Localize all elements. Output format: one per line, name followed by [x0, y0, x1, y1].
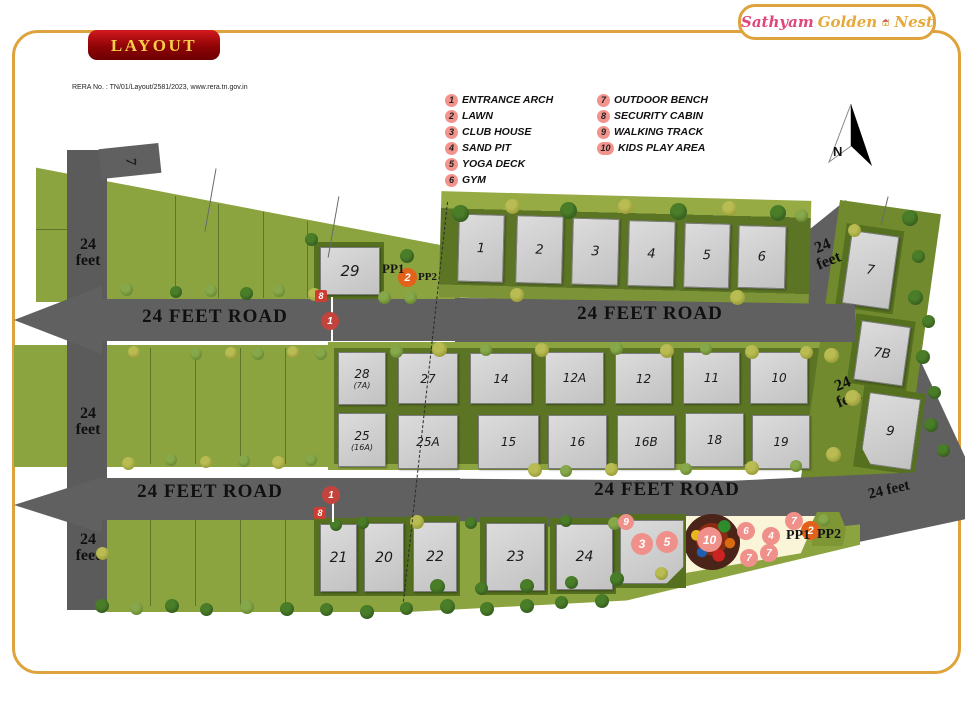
plot-16: 16 — [548, 415, 607, 469]
tree-icon — [440, 599, 455, 614]
road-label-lower-left: 24 FEET ROAD — [115, 481, 305, 503]
tree-icon — [240, 600, 254, 614]
tree-icon — [120, 283, 133, 296]
tree-icon — [252, 348, 264, 360]
tree-icon — [924, 418, 938, 432]
tree-icon — [128, 346, 140, 358]
marker-walking-track: 9 — [618, 514, 634, 530]
plot-number: 29 — [340, 262, 359, 280]
tree-icon — [273, 285, 285, 297]
tree-icon — [225, 347, 237, 359]
plot-23: 23 — [486, 523, 545, 591]
plot-28: 28(7A) — [338, 352, 386, 405]
tree-icon — [535, 343, 549, 357]
legend-num-2: 2 — [445, 110, 458, 123]
tree-icon — [745, 461, 759, 475]
tree-icon — [238, 455, 250, 467]
legend-num-6: 6 — [445, 174, 458, 187]
green-left-strip — [14, 345, 67, 467]
legend-label: GYM — [462, 174, 486, 186]
tree-icon — [510, 288, 524, 302]
tree-icon — [800, 346, 813, 359]
legend-label: CLUB HOUSE — [462, 126, 531, 138]
legend-left-column: 1ENTRANCE ARCH 2LAWN 3CLUB HOUSE 4SAND P… — [445, 92, 553, 188]
plot-14: 14 — [470, 353, 532, 404]
tree-icon — [670, 203, 687, 220]
legend-num-3: 3 — [445, 126, 458, 139]
tree-icon — [937, 444, 950, 457]
road-label-lower-right: 24 FEET ROAD — [572, 479, 762, 501]
plot-16b: 16B — [617, 415, 675, 469]
marker-security-cabin: 8 — [314, 507, 326, 519]
tree-icon — [790, 460, 802, 472]
plot-25: 25(16A) — [338, 413, 386, 467]
plot-number: 7B — [872, 345, 891, 362]
plot-7b: 7B — [853, 320, 911, 386]
plot-division-line — [240, 520, 241, 606]
brand-word-golden: Golden — [818, 13, 877, 31]
plot-11: 11 — [683, 352, 740, 404]
tree-icon — [745, 345, 759, 359]
tree-icon — [280, 602, 294, 616]
tree-icon — [700, 343, 712, 355]
tree-icon — [555, 596, 568, 609]
plot-number: 4 — [647, 246, 656, 261]
tree-icon — [818, 514, 830, 526]
legend-item: 4SAND PIT — [445, 140, 553, 156]
plot-number: 16B — [634, 435, 658, 449]
tree-icon — [165, 454, 177, 466]
house-icon — [881, 14, 890, 31]
plot-number: 28 — [354, 367, 369, 381]
tree-icon — [928, 386, 941, 399]
plot-6: 6 — [737, 225, 787, 289]
tree-icon — [200, 456, 212, 468]
plot-division-line — [263, 212, 264, 298]
feet-label-left-2: 24 feet — [68, 406, 108, 439]
plot-21: 21 — [320, 524, 357, 592]
legend-num-5: 5 — [445, 158, 458, 171]
plot-number: 14 — [493, 372, 508, 386]
layout-plan-page: LAYOUT RERA No. : TN/01/Layout/2581/2023… — [0, 0, 972, 704]
legend-label: YOGA DECK — [462, 158, 525, 170]
legend-label: OUTDOOR BENCH — [614, 94, 708, 106]
plot-1: 1 — [457, 214, 505, 283]
tree-icon — [902, 210, 918, 226]
plot-18: 18 — [685, 413, 744, 467]
plot-division-line — [218, 204, 219, 298]
rera-number-text: RERA No. : TN/01/Layout/2581/2023, www.r… — [72, 84, 248, 91]
plot-number: 25 — [354, 429, 369, 443]
plot-number: 22 — [426, 549, 444, 565]
marker-entrance-arch: 1 — [321, 312, 339, 330]
tree-icon — [130, 602, 143, 615]
plot-19: 19 — [752, 415, 810, 469]
legend-num-10: 10 — [597, 142, 614, 155]
tree-icon — [378, 291, 391, 304]
tree-icon — [845, 390, 861, 406]
tree-icon — [770, 205, 786, 221]
plot-division-line — [175, 196, 176, 298]
plot-division-line — [285, 520, 286, 606]
plot-number: 18 — [707, 433, 722, 447]
plot-division-line — [36, 229, 67, 230]
legend-item: 5YOGA DECK — [445, 156, 553, 172]
brand-logo: Sathyam Golden Nest — [738, 4, 936, 40]
tree-icon — [475, 582, 488, 595]
plot-division-line — [150, 520, 151, 606]
plot-number: 21 — [330, 550, 348, 566]
plot-division-line — [285, 348, 286, 464]
tree-icon — [826, 447, 841, 462]
tree-icon — [122, 457, 135, 470]
plot-number: 6 — [757, 249, 766, 264]
plot-12a: 12A — [545, 352, 604, 404]
tree-icon — [480, 344, 492, 356]
tree-icon — [618, 199, 633, 214]
tree-icon — [660, 344, 674, 358]
legend-label: LAWN — [462, 110, 493, 122]
tree-icon — [520, 599, 534, 613]
plot-number: 12 — [636, 372, 651, 386]
north-label: N — [833, 144, 842, 159]
legend-num-8: 8 — [597, 110, 610, 123]
plot-division-line — [150, 348, 151, 464]
legend-item: 2LAWN — [445, 108, 553, 124]
plot-9: 9 — [860, 392, 922, 471]
layout-title-badge: LAYOUT — [88, 30, 220, 60]
tree-icon — [560, 515, 572, 527]
tree-icon — [908, 290, 923, 305]
legend-label: KIDS PLAY AREA — [618, 142, 705, 154]
plot-7: 7 — [842, 230, 900, 310]
legend-item: 8SECURITY CABIN — [597, 108, 708, 124]
tree-icon — [480, 602, 494, 616]
tree-icon — [305, 454, 317, 466]
legend-num-1: 1 — [445, 94, 458, 107]
plot-subnumber: (7A) — [354, 381, 371, 390]
marker-entrance-arch: 1 — [322, 486, 340, 504]
legend-num-7: 7 — [597, 94, 610, 107]
tree-icon — [96, 547, 109, 560]
plot-number: 24 — [576, 549, 594, 565]
tree-icon — [315, 348, 327, 360]
plot-2: 2 — [515, 215, 564, 284]
plot-10: 10 — [750, 352, 808, 404]
marker-club-house: 3 — [631, 533, 653, 555]
tree-icon — [360, 605, 374, 619]
legend-num-4: 4 — [445, 142, 458, 155]
road-label-upper-right: 24 FEET ROAD — [555, 303, 745, 325]
pp1-label-upper: PP1 — [382, 261, 404, 277]
plot-number: 20 — [375, 550, 393, 566]
tree-icon — [95, 599, 109, 613]
marker-security-cabin: 8 — [315, 290, 327, 302]
marker-kids-play-area: 10 — [697, 527, 722, 552]
marker-outdoor-bench: 7 — [760, 544, 778, 562]
tree-icon — [610, 572, 624, 586]
plot-number: 3 — [591, 244, 600, 259]
legend-label: ENTRANCE ARCH — [462, 94, 553, 106]
marker-gym: 6 — [737, 522, 755, 540]
legend-item: 6GYM — [445, 172, 553, 188]
tree-icon — [922, 315, 935, 328]
tree-icon — [722, 201, 737, 216]
tree-icon — [465, 517, 477, 529]
tree-icon — [912, 250, 925, 263]
tree-icon — [430, 579, 445, 594]
legend-label: SECURITY CABIN — [614, 110, 703, 122]
tree-icon — [595, 594, 609, 608]
tree-icon — [305, 233, 318, 246]
tree-icon — [565, 576, 578, 589]
legend-item: 3CLUB HOUSE — [445, 124, 553, 140]
tree-icon — [452, 205, 469, 222]
road-stub-top: 7 — [99, 143, 162, 179]
tree-icon — [680, 463, 692, 475]
legend-label: WALKING TRACK — [614, 126, 703, 138]
plot-15: 15 — [478, 415, 539, 469]
marker-sand-pit: 4 — [762, 527, 780, 545]
tree-icon — [320, 603, 333, 616]
plot-5: 5 — [683, 223, 731, 289]
plot-division-line — [307, 221, 308, 298]
tree-icon — [390, 345, 403, 358]
tree-icon — [205, 285, 217, 297]
plot-number: 10 — [771, 371, 786, 385]
marker-yoga-deck: 5 — [656, 531, 678, 553]
legend-item: 1ENTRANCE ARCH — [445, 92, 553, 108]
plot-number: 2 — [535, 242, 544, 257]
tree-icon — [165, 599, 179, 613]
tree-icon — [400, 602, 413, 615]
plot-number: 9 — [885, 423, 895, 439]
tree-icon — [432, 342, 447, 357]
plot-division-line — [195, 520, 196, 606]
legend-item: 7OUTDOOR BENCH — [597, 92, 708, 108]
tree-icon — [190, 348, 202, 360]
plot-4: 4 — [627, 220, 676, 287]
plot-subnumber: (16A) — [351, 443, 373, 452]
pp2-label-upper: PP2 — [418, 271, 437, 283]
road-label-upper-left: 24 FEET ROAD — [115, 306, 315, 328]
plot-3: 3 — [571, 218, 620, 286]
plot-number: 11 — [704, 371, 719, 385]
tree-icon — [916, 350, 930, 364]
plot-division-line — [240, 348, 241, 464]
brand-word-sathyam: Sathyam — [741, 13, 814, 31]
tree-icon — [528, 463, 542, 477]
legend-item: 9WALKING TRACK — [597, 124, 708, 140]
stub-label: 7 — [121, 157, 138, 165]
tree-icon — [730, 290, 745, 305]
plot-number: 15 — [501, 435, 516, 449]
plot-25a: 25A — [398, 415, 458, 469]
tree-icon — [824, 348, 839, 363]
legend-num-9: 9 — [597, 126, 610, 139]
clubhouse-plot — [620, 520, 684, 584]
tree-icon — [357, 517, 369, 529]
tree-icon — [505, 199, 520, 214]
tree-icon — [272, 456, 285, 469]
north-arrow-icon — [824, 102, 876, 170]
tree-icon — [520, 579, 534, 593]
plot-division-line — [195, 348, 196, 464]
tree-icon — [795, 209, 808, 222]
legend-item: 10KIDS PLAY AREA — [597, 140, 708, 156]
plot-20: 20 — [364, 523, 404, 592]
tree-icon — [240, 287, 253, 300]
tree-icon — [655, 567, 668, 580]
plot-number: 23 — [507, 549, 525, 565]
plot-number: 5 — [703, 248, 712, 263]
green-mid-left — [107, 345, 328, 467]
legend-right-column: 7OUTDOOR BENCH 8SECURITY CABIN 9WALKING … — [597, 92, 708, 156]
tree-icon — [848, 224, 861, 237]
tree-icon — [287, 346, 299, 358]
plot-number: 7 — [865, 262, 875, 278]
pp2-label-lower: PP2 — [817, 527, 841, 543]
plot-12: 12 — [615, 353, 672, 404]
brand-word-nest: Nest — [894, 13, 933, 31]
plot-number: 16 — [570, 435, 585, 449]
pp1-label-lower: PP1 — [786, 528, 810, 544]
tree-icon — [560, 465, 572, 477]
tree-icon — [560, 202, 577, 219]
plot-number: 19 — [773, 435, 788, 449]
plot-number: 1 — [477, 241, 486, 256]
marker-outdoor-bench: 7 — [740, 549, 758, 567]
tree-icon — [605, 463, 618, 476]
plot-number: 12A — [563, 371, 586, 385]
tree-icon — [170, 286, 182, 298]
tree-icon — [200, 603, 213, 616]
feet-label-left-1: 24 feet — [68, 237, 108, 270]
tree-icon — [404, 291, 417, 304]
legend-label: SAND PIT — [462, 142, 511, 154]
tree-icon — [610, 342, 623, 355]
